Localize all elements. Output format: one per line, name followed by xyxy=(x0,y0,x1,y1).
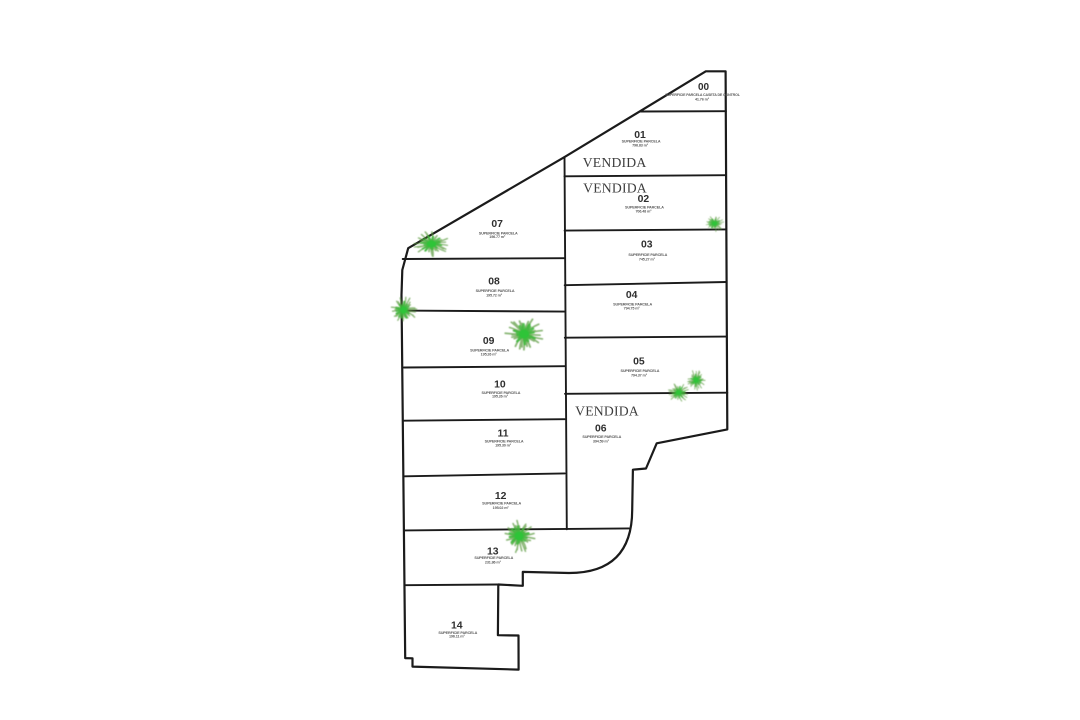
svg-text:SUPERFICIE PARCELA CASETA DE C: SUPERFICIE PARCELA CASETA DE CONTROL xyxy=(665,93,741,97)
svg-text:195.02 m²: 195.02 m² xyxy=(493,506,510,510)
svg-text:VENDIDA: VENDIDA xyxy=(583,155,647,170)
svg-text:00: 00 xyxy=(698,82,710,93)
svg-text:SUPERFICIE PARCELA: SUPERFICIE PARCELA xyxy=(625,205,664,209)
svg-text:196.77 m²: 196.77 m² xyxy=(489,235,506,239)
svg-text:VENDIDA: VENDIDA xyxy=(575,404,639,419)
svg-text:796.83 m²: 796.83 m² xyxy=(632,144,649,148)
svg-text:195.72 m²: 195.72 m² xyxy=(486,293,503,297)
svg-text:04: 04 xyxy=(626,290,638,301)
svg-text:195.30 m²: 195.30 m² xyxy=(495,444,512,448)
svg-text:SUPERFICIE PARCELA: SUPERFICIE PARCELA xyxy=(482,502,521,506)
svg-text:394.59 m²: 394.59 m² xyxy=(593,439,610,443)
svg-text:SUPERFICIE PARCELA: SUPERFICIE PARCELA xyxy=(620,369,659,373)
svg-text:07: 07 xyxy=(491,219,503,230)
svg-text:231.86 m²: 231.86 m² xyxy=(485,560,502,564)
svg-text:195.26 m²: 195.26 m² xyxy=(492,395,509,399)
svg-text:745.27 m²: 745.27 m² xyxy=(639,258,656,262)
svg-text:02: 02 xyxy=(638,194,650,205)
svg-text:706.48 m²: 706.48 m² xyxy=(635,210,652,214)
svg-text:794.75 m²: 794.75 m² xyxy=(624,307,641,311)
svg-text:10: 10 xyxy=(494,380,506,391)
svg-text:09: 09 xyxy=(483,336,495,347)
svg-text:08: 08 xyxy=(488,277,500,288)
svg-text:794.37 m²: 794.37 m² xyxy=(631,374,648,378)
svg-text:12: 12 xyxy=(495,491,507,502)
svg-text:06: 06 xyxy=(595,423,607,434)
svg-text:41.76 m²: 41.76 m² xyxy=(695,98,710,102)
svg-text:195.26 m²: 195.26 m² xyxy=(481,353,498,357)
svg-text:196.11 m²: 196.11 m² xyxy=(449,635,466,639)
svg-text:11: 11 xyxy=(498,429,509,440)
svg-text:05: 05 xyxy=(633,357,645,368)
svg-text:03: 03 xyxy=(641,240,653,251)
svg-text:SUPERFICIE PARCELA: SUPERFICIE PARCELA xyxy=(476,289,515,293)
